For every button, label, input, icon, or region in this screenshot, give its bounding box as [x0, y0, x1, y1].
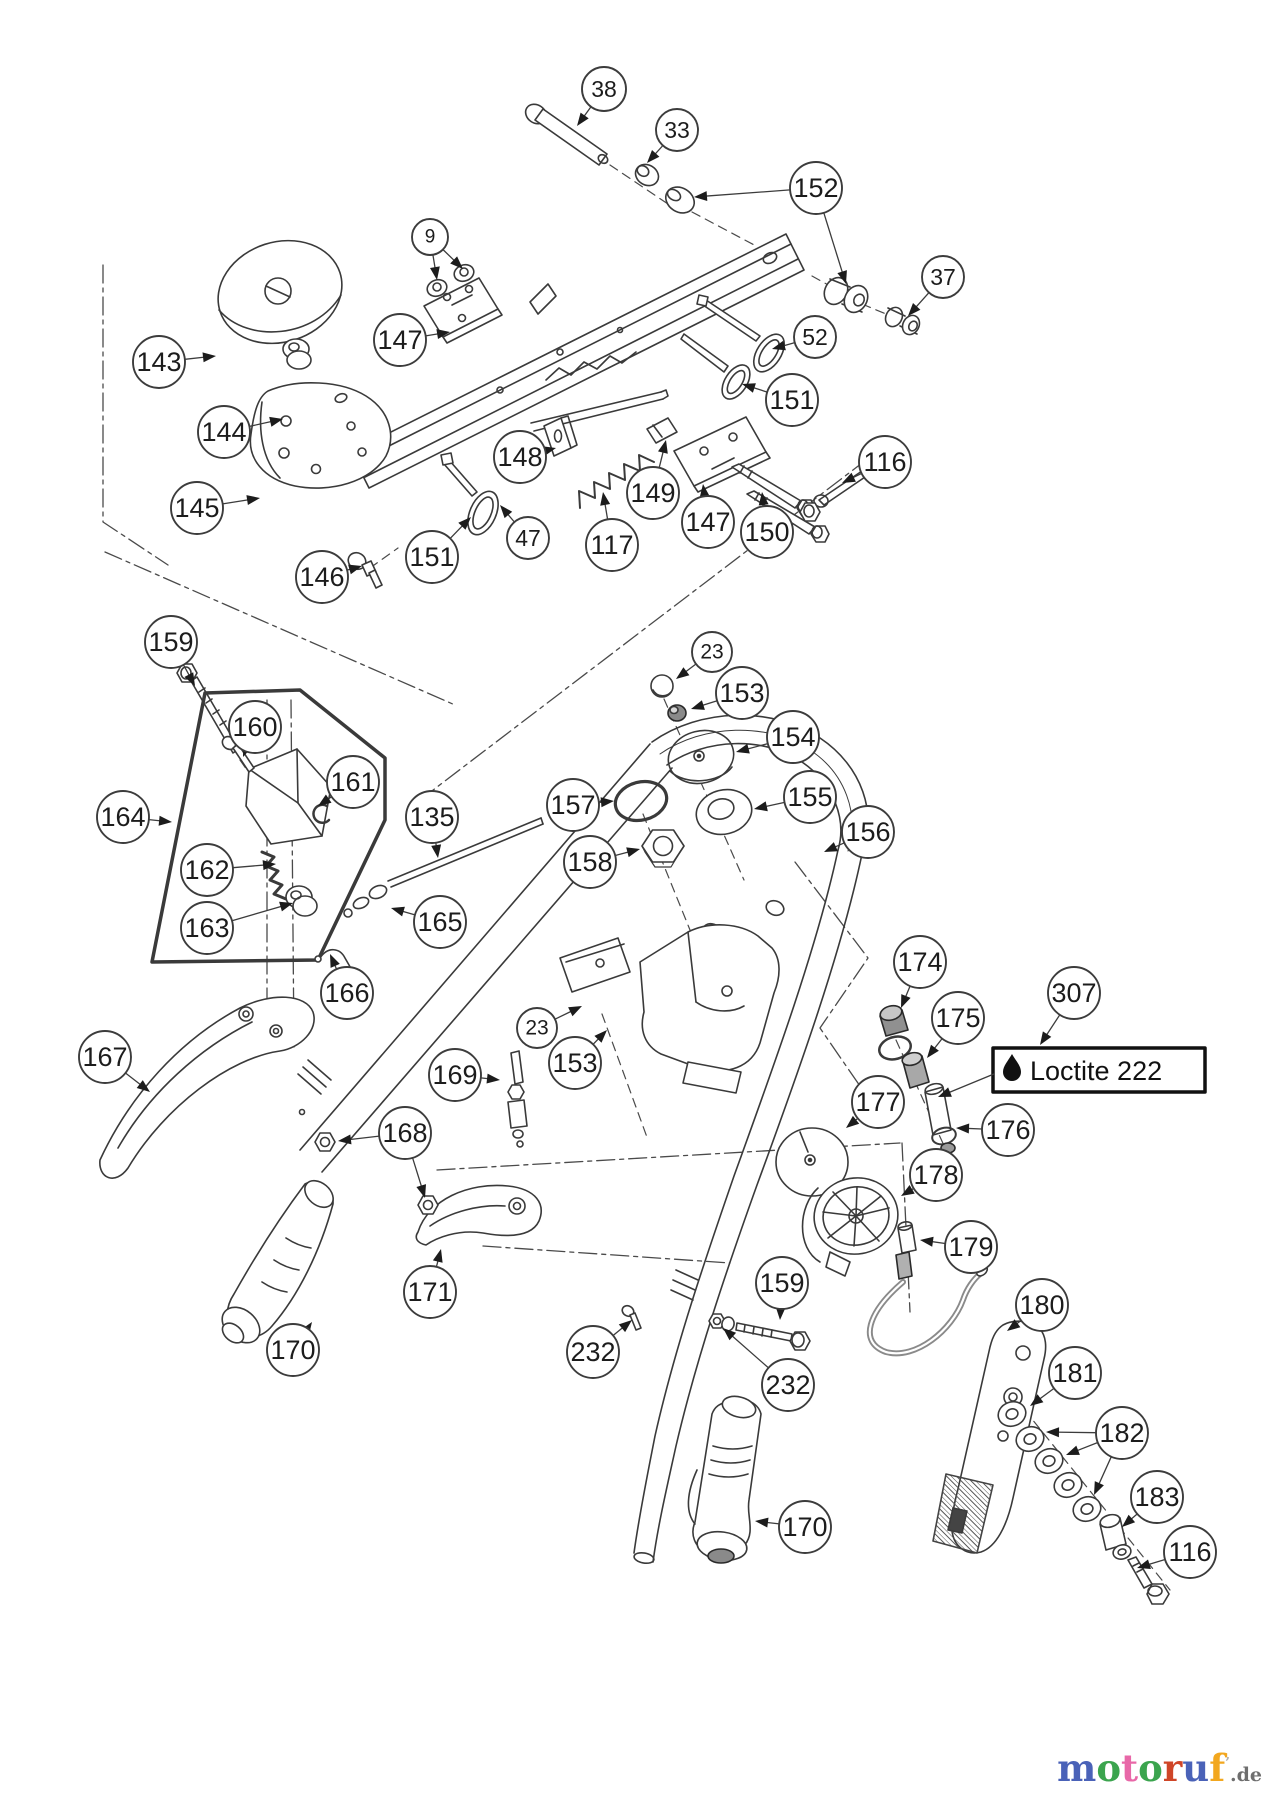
hook-166-part	[315, 956, 321, 962]
callout-number: 168	[382, 1118, 427, 1148]
callout-178[interactable]: 178	[901, 1149, 962, 1201]
callout-number: 154	[770, 722, 815, 752]
callout-number: 146	[299, 562, 344, 592]
leader-arrowhead	[338, 1135, 352, 1145]
callout-number: 23	[525, 1017, 548, 1040]
construction-lines-part	[483, 1246, 730, 1263]
cable-adjuster-169-part	[517, 1141, 523, 1147]
cable-tie-52-part	[697, 295, 708, 306]
callout-number: 151	[409, 542, 454, 572]
motoruf-logo[interactable]: motoruf’.de	[1057, 1746, 1262, 1790]
leader-arrowhead	[600, 492, 610, 506]
lever-167-part	[100, 997, 314, 1178]
callout-number: 9	[425, 227, 436, 248]
nut-153a-part	[670, 707, 678, 714]
bushing-144	[283, 339, 311, 369]
bolt-116a-part	[819, 471, 868, 505]
callout-153[interactable]: 153	[549, 1030, 607, 1089]
leader-arrowhead	[203, 352, 217, 362]
callout-number: 163	[184, 913, 229, 943]
loctite-text: Loctite 222	[1030, 1056, 1162, 1086]
leader-line	[413, 1158, 423, 1190]
callout-number: 148	[497, 442, 542, 472]
callout-number: 157	[550, 790, 595, 820]
cable-adjuster-169-part	[511, 1051, 523, 1084]
wire-harness-part	[870, 1274, 980, 1353]
callout-159[interactable]: 159	[756, 1257, 808, 1320]
callout-116[interactable]: 116	[1137, 1526, 1216, 1578]
throttle-cable-135-part	[352, 895, 371, 910]
callout-159[interactable]: 159	[145, 616, 197, 686]
logo-letter: f	[1209, 1746, 1225, 1790]
leader-line	[946, 1074, 993, 1094]
fan-wheel-178-part	[856, 1187, 857, 1216]
callout-179[interactable]: 179	[920, 1221, 997, 1273]
construction-lines-part	[692, 212, 758, 247]
callout-153[interactable]: 153	[691, 667, 768, 719]
callout-number: 182	[1099, 1418, 1144, 1448]
leader-arrowhead	[619, 1320, 632, 1332]
callout-number: 175	[935, 1003, 980, 1033]
page: { "diagram": { "type": "exploded-parts-d…	[0, 0, 1273, 1800]
logo-letter: u	[1182, 1746, 1209, 1790]
mount-plate-145	[250, 383, 390, 488]
washers-181-182-part	[1051, 1469, 1086, 1501]
callout-180[interactable]: 180	[1007, 1279, 1068, 1331]
leader-arrowhead	[956, 1124, 969, 1134]
logo-letter: r	[1163, 1746, 1183, 1790]
pin-179-part	[896, 1252, 912, 1279]
callout-number: 33	[664, 117, 690, 143]
callout-163[interactable]: 163	[181, 902, 293, 954]
callout-183[interactable]: 183	[1122, 1471, 1183, 1527]
leader-arrowhead	[626, 847, 640, 857]
carriage-bolt-146-part	[369, 570, 382, 588]
leader-line	[1098, 1457, 1112, 1487]
cable-adjuster-169	[508, 1051, 527, 1147]
switch-body-175	[901, 1051, 929, 1088]
callout-37[interactable]: 37	[908, 256, 964, 316]
handlebar-156-part	[673, 1280, 695, 1290]
callout-number: 150	[744, 517, 789, 547]
throttle-cable-135-part	[367, 883, 388, 901]
callout-number: 160	[232, 712, 277, 742]
cable-adjuster-169-part	[508, 1100, 527, 1128]
callout-number: 52	[802, 324, 828, 350]
trigger-171	[416, 1185, 541, 1245]
callout-33[interactable]: 33	[647, 109, 698, 163]
callout-147[interactable]: 147	[682, 484, 734, 548]
cable-tie-151a	[681, 334, 756, 404]
bolt-159b-part	[771, 1330, 772, 1337]
leader-arrowhead	[755, 1518, 769, 1528]
callout-number: 166	[324, 978, 369, 1008]
bracket-160-part	[297, 749, 298, 803]
leader-line	[1055, 1432, 1096, 1433]
leader-arrowhead	[927, 1045, 939, 1058]
leader-arrowhead	[901, 994, 911, 1008]
cable-tie-151b-part	[441, 453, 453, 465]
bracket-160	[220, 734, 331, 844]
handlebar-156-part	[671, 1290, 693, 1300]
bushing-163	[286, 886, 317, 916]
bushing-33	[632, 160, 663, 190]
o-ring-157-part	[611, 776, 671, 825]
callout-number: 147	[685, 507, 730, 537]
line-art: Loctite 222	[100, 100, 1205, 1604]
leader-arrowhead	[568, 1006, 582, 1016]
callout-number: 162	[184, 855, 229, 885]
grip-170b	[688, 1393, 761, 1563]
callout-number: 116	[863, 447, 906, 477]
callout-number: 181	[1052, 1358, 1097, 1388]
callout-135[interactable]: 135	[406, 791, 458, 858]
spring-162	[262, 852, 286, 899]
callout-number: 158	[567, 847, 612, 877]
callout-number: 161	[330, 767, 375, 797]
logo-domain-suffix: .de	[1230, 1764, 1262, 1786]
leader-line	[233, 865, 267, 868]
handlebar-156-part	[633, 1551, 654, 1564]
disc-177-part	[809, 1159, 812, 1162]
handlebar-156-part	[676, 1270, 698, 1280]
callout-307[interactable]: 307	[1040, 967, 1100, 1045]
latch-149	[647, 418, 677, 443]
flanged-ring-155-part	[692, 784, 757, 840]
leader-line	[824, 213, 844, 276]
grip-170a	[215, 1175, 338, 1350]
logo-letter: o	[1138, 1746, 1163, 1790]
callout-170[interactable]: 170	[267, 1322, 319, 1376]
logo-letter: m	[1057, 1746, 1096, 1790]
construction-lines-part	[103, 265, 168, 565]
handlebar-156-part	[300, 1110, 305, 1115]
callout-number: 169	[432, 1060, 477, 1090]
o-ring-157	[611, 776, 671, 825]
leader-arrowhead	[487, 1074, 501, 1084]
callout-143[interactable]: 143	[133, 336, 216, 388]
callout-number: 147	[377, 325, 422, 355]
leader-arrowhead	[500, 505, 512, 518]
callout-number: 177	[855, 1087, 900, 1117]
callout-174[interactable]: 174	[894, 936, 946, 1008]
callout-number: 159	[759, 1268, 804, 1298]
leader-line	[730, 1334, 769, 1368]
nuts-168-part	[315, 1133, 335, 1151]
parts-diagram: Loctite 222 3833152937143147521511441481…	[0, 0, 1273, 1800]
callout-155[interactable]: 155	[754, 771, 836, 823]
callout-number: 176	[985, 1115, 1030, 1145]
callout-38[interactable]: 38	[577, 67, 626, 126]
callout-161[interactable]: 161	[318, 756, 379, 808]
callout-145[interactable]: 145	[171, 482, 260, 534]
leader-arrowhead	[736, 744, 750, 754]
nuts-168-part	[418, 1196, 438, 1214]
leader-arrowhead	[246, 495, 260, 505]
cable-tie-151b-part	[444, 460, 477, 496]
callout-number: 156	[845, 817, 890, 847]
callout-number: 164	[100, 802, 145, 832]
leader-arrowhead	[691, 700, 705, 710]
washers-181-182-part	[1070, 1493, 1105, 1525]
callout-165[interactable]: 165	[391, 896, 466, 948]
leader-arrowhead	[416, 1184, 426, 1198]
latch-149-part	[647, 418, 677, 443]
lever-167	[100, 997, 314, 1178]
crossbar-tube-part	[530, 284, 556, 314]
disc-143	[205, 225, 356, 359]
leader-line	[1045, 1015, 1060, 1038]
leader-arrowhead	[1066, 1446, 1080, 1455]
switch-plug-176	[924, 1082, 958, 1153]
trigger-171-part	[416, 1185, 541, 1245]
logo-letter: t	[1121, 1746, 1138, 1790]
throttle-cable-135-part	[541, 818, 543, 824]
callout-47[interactable]: 47	[500, 505, 549, 559]
callout-number: 174	[897, 947, 942, 977]
leader-arrowhead	[601, 797, 614, 807]
leader-arrowhead	[694, 191, 707, 201]
bolt-159b-part	[753, 1327, 754, 1334]
callout-177[interactable]: 177	[846, 1076, 904, 1128]
callout-166[interactable]: 166	[321, 954, 373, 1019]
fan-wheel-178-part	[826, 1252, 850, 1276]
leader-arrowhead	[330, 954, 340, 968]
mount-plate-145-part	[250, 383, 390, 488]
disc-154	[663, 724, 740, 790]
callout-168[interactable]: 168	[338, 1107, 431, 1198]
leader-arrowhead	[842, 473, 856, 483]
leader-arrowhead	[1040, 1031, 1051, 1045]
control-housing-part	[640, 925, 779, 1071]
pin-179	[896, 1221, 916, 1279]
cable-adjuster-169-part	[513, 1130, 523, 1138]
leader-arrowhead	[577, 113, 589, 126]
ball-knob-23a	[651, 675, 673, 697]
leader-line	[703, 190, 790, 196]
motoruf-wordmark: motoruf	[1057, 1746, 1225, 1790]
callout-number: 143	[136, 347, 181, 377]
callout-169[interactable]: 169	[429, 1049, 500, 1101]
wire-harness	[870, 1264, 989, 1353]
loctite-label: Loctite 222	[938, 1048, 1205, 1097]
callout-number: 178	[913, 1160, 958, 1190]
callout-number: 135	[409, 802, 454, 832]
leader-arrowhead	[824, 842, 838, 852]
callout-number: 170	[782, 1512, 827, 1542]
callout-149[interactable]: 149	[627, 440, 679, 519]
spring-162-part	[262, 852, 286, 899]
callout-167[interactable]: 167	[79, 1031, 150, 1092]
callout-151[interactable]: 151	[406, 517, 471, 583]
callout-156[interactable]: 156	[824, 806, 894, 858]
callout-171[interactable]: 171	[404, 1249, 456, 1318]
callout-175[interactable]: 175	[927, 992, 984, 1058]
hex-nut-158	[642, 830, 684, 867]
callout-148[interactable]: 148	[494, 431, 556, 483]
bolt-159b-part	[762, 1329, 763, 1336]
handlebar-156-part	[303, 1067, 326, 1087]
callout-number: 149	[630, 478, 675, 508]
nut-153a	[668, 705, 686, 721]
leader-line	[223, 499, 251, 504]
callout-number: 179	[948, 1232, 993, 1262]
callout-176[interactable]: 176	[956, 1104, 1034, 1156]
callout-number: 38	[591, 76, 617, 102]
callout-number: 153	[719, 678, 764, 708]
callout-number: 117	[590, 530, 633, 560]
callout-number: 183	[1134, 1482, 1179, 1512]
strip-and-spring-plate-part	[661, 390, 668, 399]
callout-number: 151	[769, 385, 814, 415]
leader-arrowhead	[1122, 1515, 1135, 1527]
callout-number: 153	[552, 1048, 597, 1078]
logo-letter: o	[1096, 1746, 1121, 1790]
flanged-ring-155	[692, 784, 757, 840]
leader-arrowhead	[391, 907, 405, 917]
leader-arrowhead	[1094, 1481, 1104, 1495]
screw-232a-part	[630, 1313, 641, 1330]
callout-232[interactable]: 232	[567, 1320, 632, 1378]
disc-154-part	[698, 755, 701, 758]
leader-arrowhead	[754, 801, 768, 811]
callout-number: 47	[515, 525, 541, 551]
callout-164[interactable]: 164	[97, 791, 172, 843]
grip-170b-part	[708, 1549, 734, 1563]
bushing-144-part	[287, 351, 311, 369]
handlebar-156-part	[764, 898, 786, 917]
callout-number: 167	[82, 1042, 127, 1072]
leader-arrowhead	[676, 667, 689, 679]
callout-number: 155	[787, 782, 832, 812]
callout-number: 165	[417, 907, 462, 937]
leader-line	[232, 906, 284, 921]
leader-arrowhead	[431, 844, 441, 858]
clevis-pin-38-part	[535, 109, 607, 165]
cable-adjuster-169-part	[508, 1085, 524, 1099]
leader-arrowhead	[920, 1237, 934, 1247]
callout-number: 171	[407, 1277, 452, 1307]
callout-number: 145	[174, 493, 219, 523]
callout-number: 232	[570, 1337, 615, 1367]
callout-116[interactable]: 116	[842, 436, 911, 488]
throttle-cable-135-part	[344, 909, 352, 917]
callout-number: 37	[930, 264, 956, 290]
callout-number: 159	[148, 627, 193, 657]
cable-tie-151a-part	[681, 334, 728, 372]
callout-157[interactable]: 157	[547, 779, 614, 831]
bolt-116a	[800, 471, 868, 521]
leader-arrowhead	[430, 266, 440, 280]
handlebar-156-part	[308, 1060, 331, 1080]
callout-number: 232	[765, 1370, 810, 1400]
callout-number: 144	[201, 417, 246, 447]
callout-158[interactable]: 158	[564, 836, 640, 888]
callout-23[interactable]: 23	[676, 632, 732, 679]
cable-tie-151b-part	[462, 487, 504, 540]
handlebar-156-part	[298, 1074, 321, 1094]
callout-number: 116	[1168, 1537, 1211, 1567]
leader-arrowhead	[1046, 1427, 1059, 1437]
callout-number: 307	[1051, 978, 1096, 1008]
construction-lines-part	[602, 1014, 648, 1140]
leader-arrowhead	[433, 1249, 443, 1263]
callout-170[interactable]: 170	[755, 1501, 831, 1553]
callout-number: 180	[1019, 1290, 1064, 1320]
leader-arrowhead	[279, 902, 293, 912]
construction-lines-part	[370, 548, 398, 568]
callout-number: 170	[270, 1335, 315, 1365]
leader-arrowhead	[159, 816, 172, 826]
bolt-159b-part	[744, 1325, 745, 1332]
callout-151[interactable]: 151	[742, 374, 818, 426]
callout-number: 152	[793, 173, 838, 203]
callout-number: 23	[700, 641, 723, 664]
